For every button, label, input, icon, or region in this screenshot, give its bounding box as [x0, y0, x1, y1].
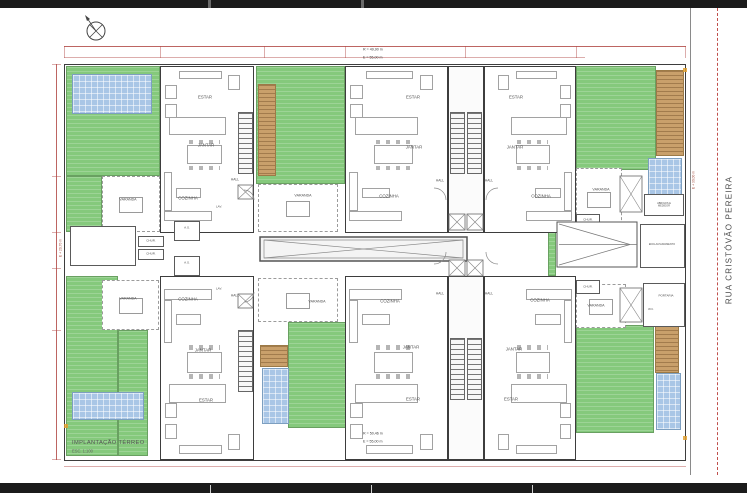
chairrow [376, 166, 410, 170]
armchair [350, 104, 363, 118]
dimension-tick [52, 176, 61, 177]
varanda-area [258, 278, 338, 322]
armchair [165, 424, 177, 439]
dining-table [187, 145, 222, 165]
chairrow [376, 374, 410, 379]
tv-cabinet [366, 71, 412, 79]
kitchen-island [176, 314, 202, 325]
chairrow [517, 140, 548, 144]
dining-table [516, 352, 550, 374]
service-room [174, 221, 200, 241]
service-room [644, 194, 684, 216]
armchair [498, 75, 510, 90]
drawing-title: IMPLANTAÇÃO TÉRREO [72, 440, 145, 446]
outdoor-table [587, 192, 611, 208]
kitchen-counter [164, 211, 212, 221]
sofa [355, 117, 418, 134]
tv-cabinet [516, 71, 557, 79]
drawing-sheet: ESTARJANTARCOZINHAHALLLAV.VARANDAESTARJA… [0, 0, 747, 493]
dimension-tick [52, 330, 61, 331]
service-room [70, 226, 136, 266]
armchair [498, 434, 510, 450]
street-alignment-line [717, 8, 718, 475]
armchair [228, 434, 240, 450]
slope-marker [683, 68, 687, 72]
bottom-level-r: R = 50,46 m [363, 432, 383, 436]
sofa [169, 117, 226, 134]
kitchen-island [535, 314, 560, 325]
kitchen-counter [349, 300, 358, 344]
slope-marker [683, 436, 687, 440]
outdoor-table [286, 201, 310, 217]
kitchen-counter [349, 289, 402, 300]
staircase [450, 112, 465, 174]
dimension-tick [52, 268, 61, 269]
tv-cabinet [179, 445, 221, 454]
varanda-area [102, 176, 160, 232]
sofa [355, 384, 418, 403]
staircase [450, 338, 465, 400]
outdoor-table [589, 299, 613, 315]
armchair [165, 403, 177, 418]
townhouse-unit [345, 276, 448, 460]
kitchen-counter [526, 289, 573, 300]
kitchen-island [176, 188, 202, 198]
tv-cabinet [516, 445, 557, 454]
dining-table [374, 352, 412, 374]
dimension-tick [345, 46, 346, 58]
varanda-area [102, 280, 159, 330]
kitchen-counter [526, 211, 573, 221]
lot-boundary-line [690, 8, 691, 475]
dimension-line [64, 466, 686, 467]
armchair [350, 403, 363, 418]
kitchen-counter [164, 300, 172, 344]
staircase [467, 112, 482, 174]
outdoor-table [119, 298, 143, 314]
grass-zone [576, 325, 654, 433]
sofa [511, 384, 567, 403]
townhouse-unit [484, 276, 576, 460]
armchair [560, 104, 572, 118]
deck-zone [655, 325, 679, 373]
dimension-tick [52, 232, 61, 233]
service-room [138, 249, 164, 260]
townhouse-unit [345, 66, 448, 233]
armchair [420, 75, 433, 90]
top-level-r: R = 49,90 m [363, 48, 383, 52]
chairrow [189, 345, 220, 350]
chairrow [189, 166, 220, 170]
dining-table [187, 352, 222, 374]
chairrow [517, 345, 548, 350]
staircase [467, 338, 482, 400]
chairrow [189, 140, 220, 144]
pool-zone [72, 74, 152, 114]
dimension-tick [52, 64, 61, 65]
kitchen-counter [164, 289, 212, 300]
slope-marker [64, 424, 68, 428]
service-room [643, 283, 685, 327]
dining-table [516, 145, 550, 165]
kitchen-counter [164, 172, 172, 212]
drawing-scale: ESC. 1:100 [72, 450, 93, 454]
armchair [228, 75, 240, 90]
armchair [165, 104, 177, 118]
kitchen-island [362, 188, 390, 198]
staircase [238, 112, 253, 174]
kitchen-counter [564, 300, 572, 344]
street-name-label: RUA CRISTÓVÃO PEREIRA [725, 176, 734, 304]
left-level-label: E + 29,70 m [59, 239, 62, 257]
armchair [560, 403, 572, 418]
kitchen-counter [564, 172, 572, 212]
deck-zone [656, 70, 684, 156]
deck-zone [260, 345, 288, 367]
townhouse-unit [484, 66, 576, 233]
grass-zone [576, 66, 656, 170]
service-room [138, 236, 164, 247]
tv-cabinet [366, 445, 412, 454]
kitchen-counter [349, 211, 402, 221]
sofa [169, 384, 226, 403]
pool-zone [72, 392, 144, 420]
staircase [238, 330, 253, 392]
dimension-line [56, 64, 57, 460]
dimension-tick [52, 459, 61, 460]
kitchen-counter [349, 172, 358, 212]
armchair [560, 85, 572, 99]
service-room [174, 256, 200, 276]
service-room [640, 224, 685, 268]
dimension-tick [64, 46, 65, 58]
dimension-tick [685, 46, 686, 58]
varanda-area [258, 184, 338, 232]
chairrow [517, 166, 548, 170]
dimension-line [64, 57, 585, 58]
top-level-e: E = 55,00 m [363, 56, 383, 60]
floor-plan: ESTARJANTARCOZINHAHALLLAV.VARANDAESTARJA… [0, 0, 747, 493]
dimension-line [64, 46, 686, 47]
dimension-tick [160, 46, 161, 58]
tv-cabinet [179, 71, 221, 79]
chairrow [376, 345, 410, 350]
kitchen-island [362, 314, 390, 325]
dimension-tick [576, 46, 577, 58]
kitchen-island [535, 188, 560, 198]
dining-table [374, 145, 412, 165]
pool-zone [656, 373, 681, 430]
service-room [576, 214, 600, 228]
chairrow [376, 140, 410, 144]
service-room [576, 280, 600, 294]
right-level-label: E + 30,00 m [692, 171, 695, 189]
deck-zone [258, 84, 276, 176]
dimension-tick [264, 46, 265, 58]
chairrow [517, 374, 548, 379]
outdoor-table [286, 293, 310, 309]
armchair [560, 424, 572, 439]
chairrow [189, 374, 220, 379]
pool-zone [262, 368, 289, 424]
outdoor-table [119, 197, 143, 213]
armchair [350, 85, 363, 99]
grass-zone [66, 176, 102, 232]
armchair [165, 85, 177, 99]
sofa [511, 117, 567, 134]
armchair [420, 434, 433, 450]
dimension-tick [465, 46, 466, 58]
bottom-level-e: E = 55,00 m [363, 440, 383, 444]
armchair [350, 424, 363, 439]
